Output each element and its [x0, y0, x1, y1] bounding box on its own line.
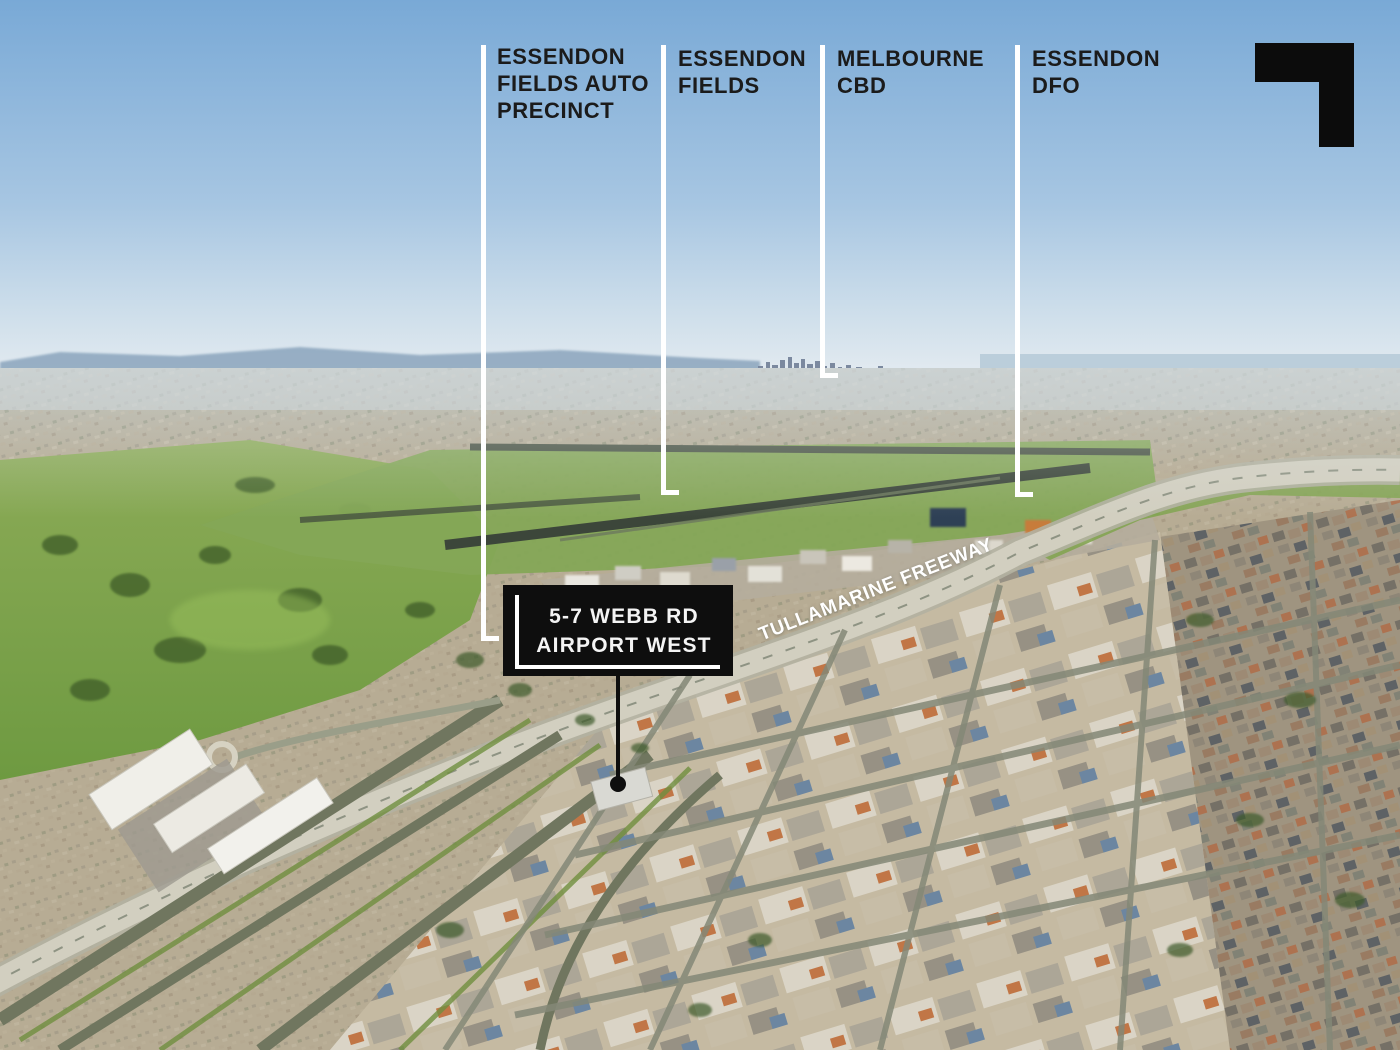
callout-label: ESSENDON FIELDS AUTO PRECINCT [497, 43, 649, 124]
corner-mark-logo [1255, 43, 1354, 147]
callout-label: MELBOURNE CBD [837, 45, 984, 99]
property-pointer-line [616, 676, 620, 780]
aerial-marketing-image: ESSENDON FIELDS AUTO PRECINCT ESSENDON F… [0, 0, 1400, 1050]
haze-overlay [0, 368, 1400, 518]
aerial-scene-svg [0, 0, 1400, 1050]
callout-leader-line [481, 45, 486, 641]
callout-leader-line [661, 45, 666, 495]
callout-label: ESSENDON FIELDS [678, 45, 806, 99]
callout-label: ESSENDON DFO [1032, 45, 1160, 99]
callout-leader-line [1015, 45, 1020, 497]
callout-leader-line [820, 45, 825, 378]
property-address: 5-7 WEBB RD AIRPORT WEST [503, 585, 733, 676]
property-pointer-dot [610, 776, 626, 792]
aerial-photo [0, 0, 1400, 1050]
logo-right-bar [1319, 43, 1354, 147]
property-marker-box: 5-7 WEBB RD AIRPORT WEST [503, 585, 733, 676]
